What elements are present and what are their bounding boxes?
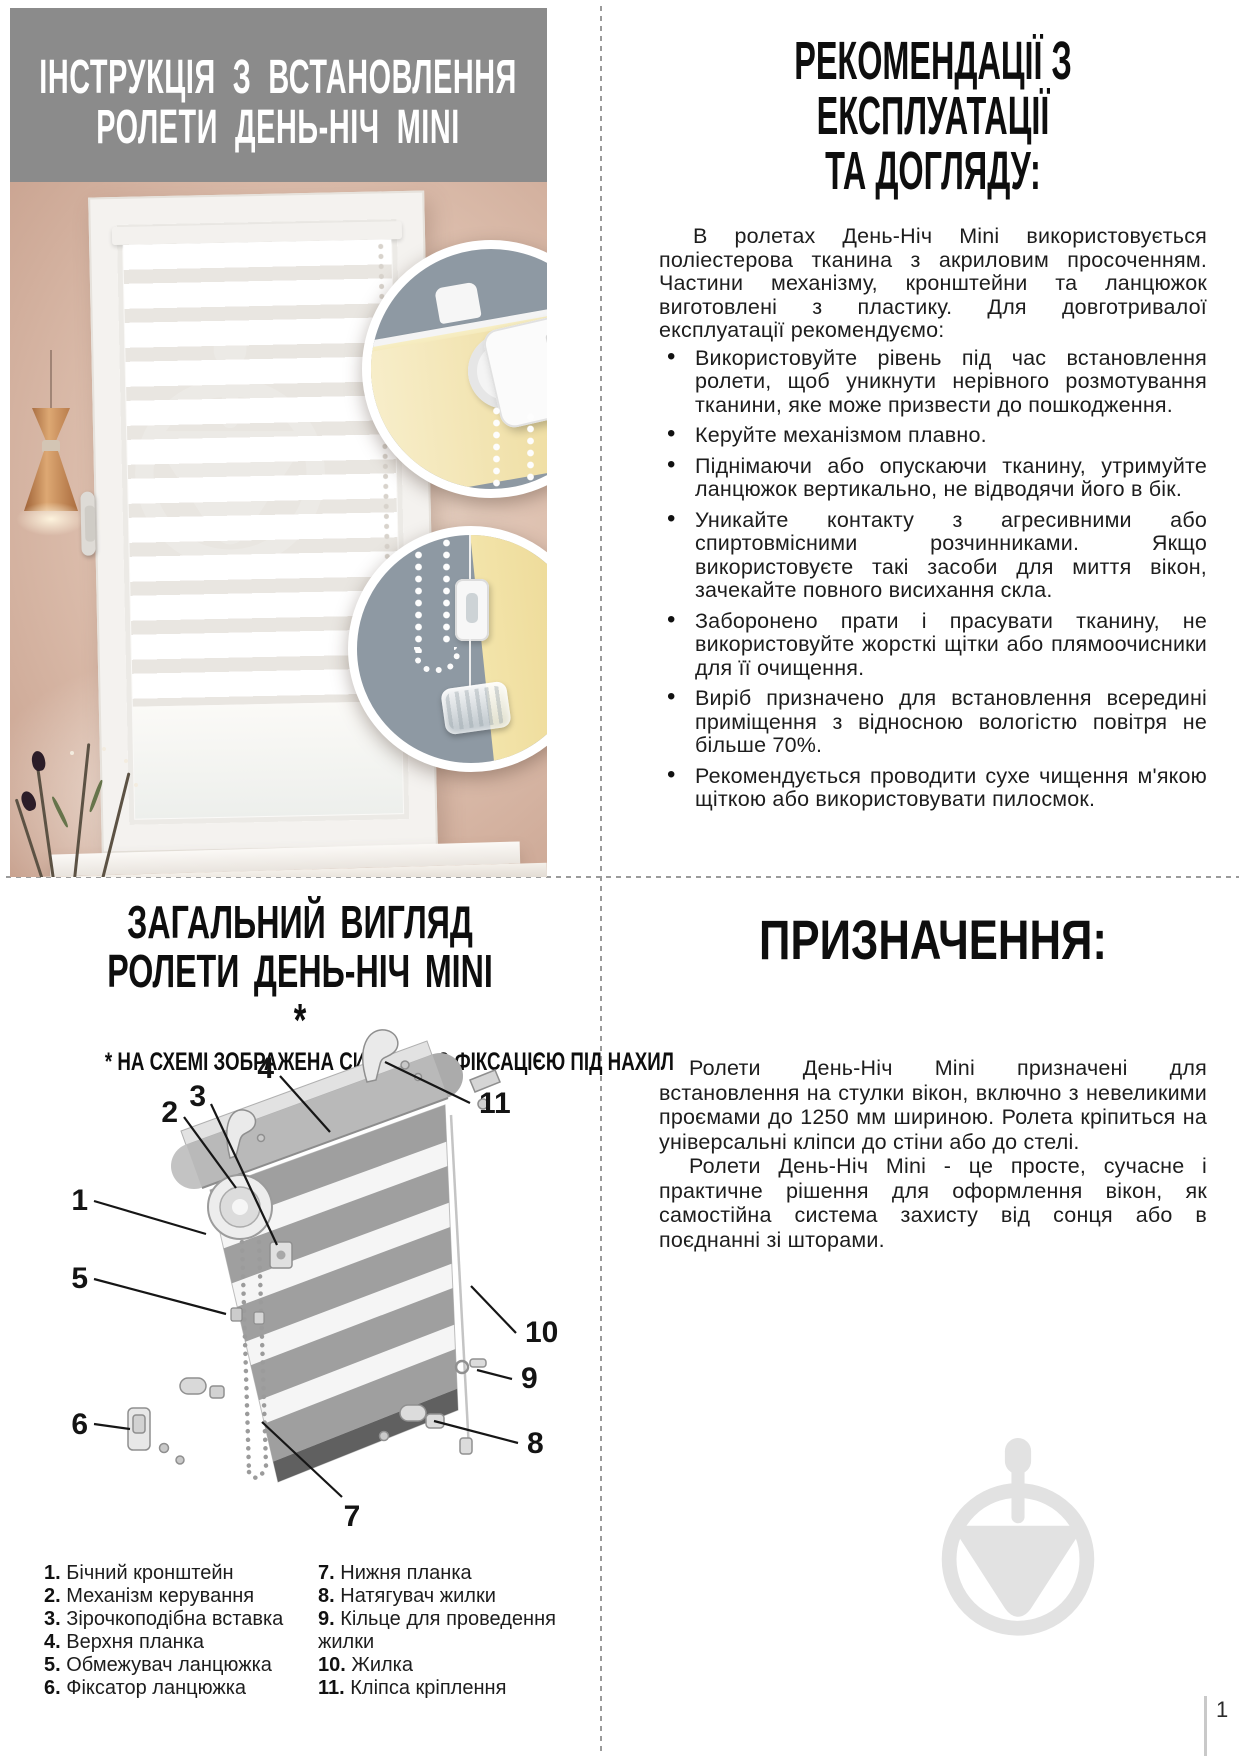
legend-label: Верхня планка [66,1631,204,1653]
callout-8: 8 [527,1427,544,1460]
recommendation-item: Виріб призначено для встановлення всеред… [695,687,1207,758]
legend-number: 1. [44,1562,61,1584]
lamp-glow [16,502,86,536]
legend-column-1: 1. Бічний кронштейн 2. Механізм керуванн… [44,1562,310,1700]
callout-6: 6 [71,1408,88,1441]
plant-bud [102,747,106,751]
installation-section: ІНСТРУКЦІЯ З ВСТАНОВЛЕННЯ РОЛЕТИ ДЕНЬ-НІ… [10,8,547,877]
callout-4: 4 [257,1052,274,1085]
legend-label: Зірочкоподібна вставка [66,1608,283,1630]
instruction-leaflet-page: ІНСТРУКЦІЯ З ВСТАНОВЛЕННЯ РОЛЕТИ ДЕНЬ-НІ… [0,0,1245,1758]
recommendation-item: Піднімаючи або опускаючи тканину, утриму… [695,455,1207,502]
legend-label: Нижня планка [340,1562,471,1584]
purpose-title-text: ПРИЗНАЧЕННЯ: [719,912,1146,968]
mechanism-slot [545,332,547,359]
installation-title-line1: ІНСТРУКЦІЯ З ВСТАНОВЛЕННЯ [40,53,518,103]
control-mechanism [208,1175,272,1239]
plant-bud [124,759,128,763]
legend-item: 2. Механізм керування [44,1585,310,1608]
legend-column-2: 7. Нижня планка 8. Натягувач жилки 9. Кі… [318,1562,576,1700]
closeup-bracket [434,282,482,325]
callout-5: 5 [71,1262,88,1295]
recommendations-section: РЕКОМЕНДАЦІЇ З ЕКСПЛУАТАЦІЇ ТА ДОГЛЯДУ: … [659,34,1207,870]
recommendations-title-line2: ТА ДОГЛЯДУ: [769,144,1098,199]
closeup-tensioner [455,579,489,641]
plant-leaf [88,779,103,812]
recommendation-item: Керуйте механізмом плавно. [695,424,1207,448]
page-number-divider [1204,1696,1207,1756]
legend-number: 11. [318,1677,345,1699]
callout-11: 11 [479,1087,511,1120]
recommendations-title: РЕКОМЕНДАЦІЇ З ЕКСПЛУАТАЦІЇ ТА ДОГЛЯДУ: [659,34,1207,199]
plant-leaf [51,796,69,828]
brand-watermark-icon [128,322,332,577]
callout-10: 10 [525,1316,558,1349]
legend-number: 6. [44,1677,61,1699]
divider-vertical [600,6,602,1752]
legend-item: 10. Жилка [318,1654,576,1677]
purpose-paragraph-2: Ролети День-Ніч Mini - це просте, сучасн… [659,1154,1207,1252]
plant-stem [100,772,130,877]
wall-lamp [24,408,78,528]
legend-number: 8. [318,1585,335,1607]
plant-stem [36,763,55,877]
legend-number: 3. [44,1608,61,1630]
legend-label: Кільце для проведення жилки [318,1608,556,1653]
legend-label: Кліпса кріплення [350,1677,506,1699]
recommendation-item: Заборонено прати і прасувати тканину, не… [695,610,1207,681]
plant-bud [134,783,138,787]
tulip-flower [19,789,39,812]
brand-watermark-icon [936,1438,1100,1643]
star-insert [270,1242,292,1268]
legend-number: 4. [44,1631,61,1653]
tensioner-slot [466,593,478,623]
recommendations-intro: В ролетах День-Ніч Mini використовується… [659,225,1207,343]
installation-title-line2: РОЛЕТИ ДЕНЬ-НІЧ MINI [97,103,461,153]
window-handle-base [85,506,96,542]
legend-item: 8. Натягувач жилки [318,1585,576,1608]
lamp-wire [50,350,52,410]
legend-number: 5. [44,1654,61,1676]
roller-blind-diagram: 1 2 3 4 5 6 7 8 9 10 11 [30,1020,570,1555]
closeup-chain [527,413,534,498]
plant-bud [70,751,74,755]
legend-number: 10. [318,1654,346,1676]
closeup-wire [469,639,471,687]
installation-photo [10,182,547,877]
plant [10,723,216,877]
legend-item: 11. Кліпса кріплення [318,1677,576,1700]
callout-9: 9 [521,1362,538,1395]
closeup-yellow-fabric [470,526,547,772]
callout-7: 7 [344,1500,361,1533]
chain-limiter [254,1312,264,1324]
recommendation-item: Уникайте контакту з агресивними або спир… [695,509,1207,603]
overview-title-line1: ЗАГАЛЬНИЙ ВИГЛЯД [97,898,503,947]
legend-label: Механізм керування [66,1585,254,1607]
purpose-title: ПРИЗНАЧЕННЯ: [659,912,1207,968]
recommendation-item: Рекомендується проводити сухе чищення м'… [695,765,1207,812]
closeup-chain-loop [414,647,460,673]
lamp-top-cone [32,408,70,442]
recommendation-item: Використовуйте рівень під час встановлен… [695,347,1207,418]
legend-label: Обмежувач ланцюжка [66,1654,272,1676]
legend-item: 4. Верхня планка [44,1631,310,1654]
purpose-section: ПРИЗНАЧЕННЯ: Ролети День-Ніч Mini призна… [659,886,1207,1586]
legend-item: 3. Зірочкоподібна вставка [44,1608,310,1631]
legend-label: Жилка [351,1654,413,1676]
closeup-clear-weight [440,681,512,736]
overview-section: ЗАГАЛЬНИЙ ВИГЛЯД РОЛЕТИ ДЕНЬ-НІЧ MINI * … [10,886,590,1750]
legend-label: Натягувач жилки [340,1585,496,1607]
chain-fixator [128,1378,224,1464]
legend-item: 6. Фіксатор ланцюжка [44,1677,310,1700]
legend-item: 1. Бічний кронштейн [44,1562,310,1585]
closeup-chain [493,407,500,498]
recommendations-title-line1: РЕКОМЕНДАЦІЇ З ЕКСПЛУАТАЦІЇ [769,34,1098,144]
callout-2: 2 [161,1096,178,1129]
closeup-chain [415,527,422,653]
recommendations-list: Використовуйте рівень під час встановлен… [659,347,1207,812]
chain-limiter [231,1308,242,1321]
legend-item: 9. Кільце для проведення жилки [318,1608,576,1654]
legend-number: 9. [318,1608,335,1630]
installation-title-banner: ІНСТРУКЦІЯ З ВСТАНОВЛЕННЯ РОЛЕТИ ДЕНЬ-НІ… [10,8,547,182]
closeup-chain [443,527,450,645]
legend-label: Фіксатор ланцюжка [66,1677,246,1699]
plant-stem [73,743,90,877]
legend-item: 5. Обмежувач ланцюжка [44,1654,310,1677]
callout-3: 3 [189,1080,206,1113]
page-number: 1 [1216,1697,1228,1723]
purpose-paragraph-1: Ролети День-Ніч Mini призначені для вста… [659,1056,1207,1154]
legend-item: 7. Нижня планка [318,1562,576,1585]
tulip-flower [30,750,46,772]
callout-1: 1 [71,1184,88,1217]
legend-number: 7. [318,1562,335,1584]
weight-ridges [445,685,508,731]
legend-label: Бічний кронштейн [66,1562,233,1584]
legend-number: 2. [44,1585,61,1607]
